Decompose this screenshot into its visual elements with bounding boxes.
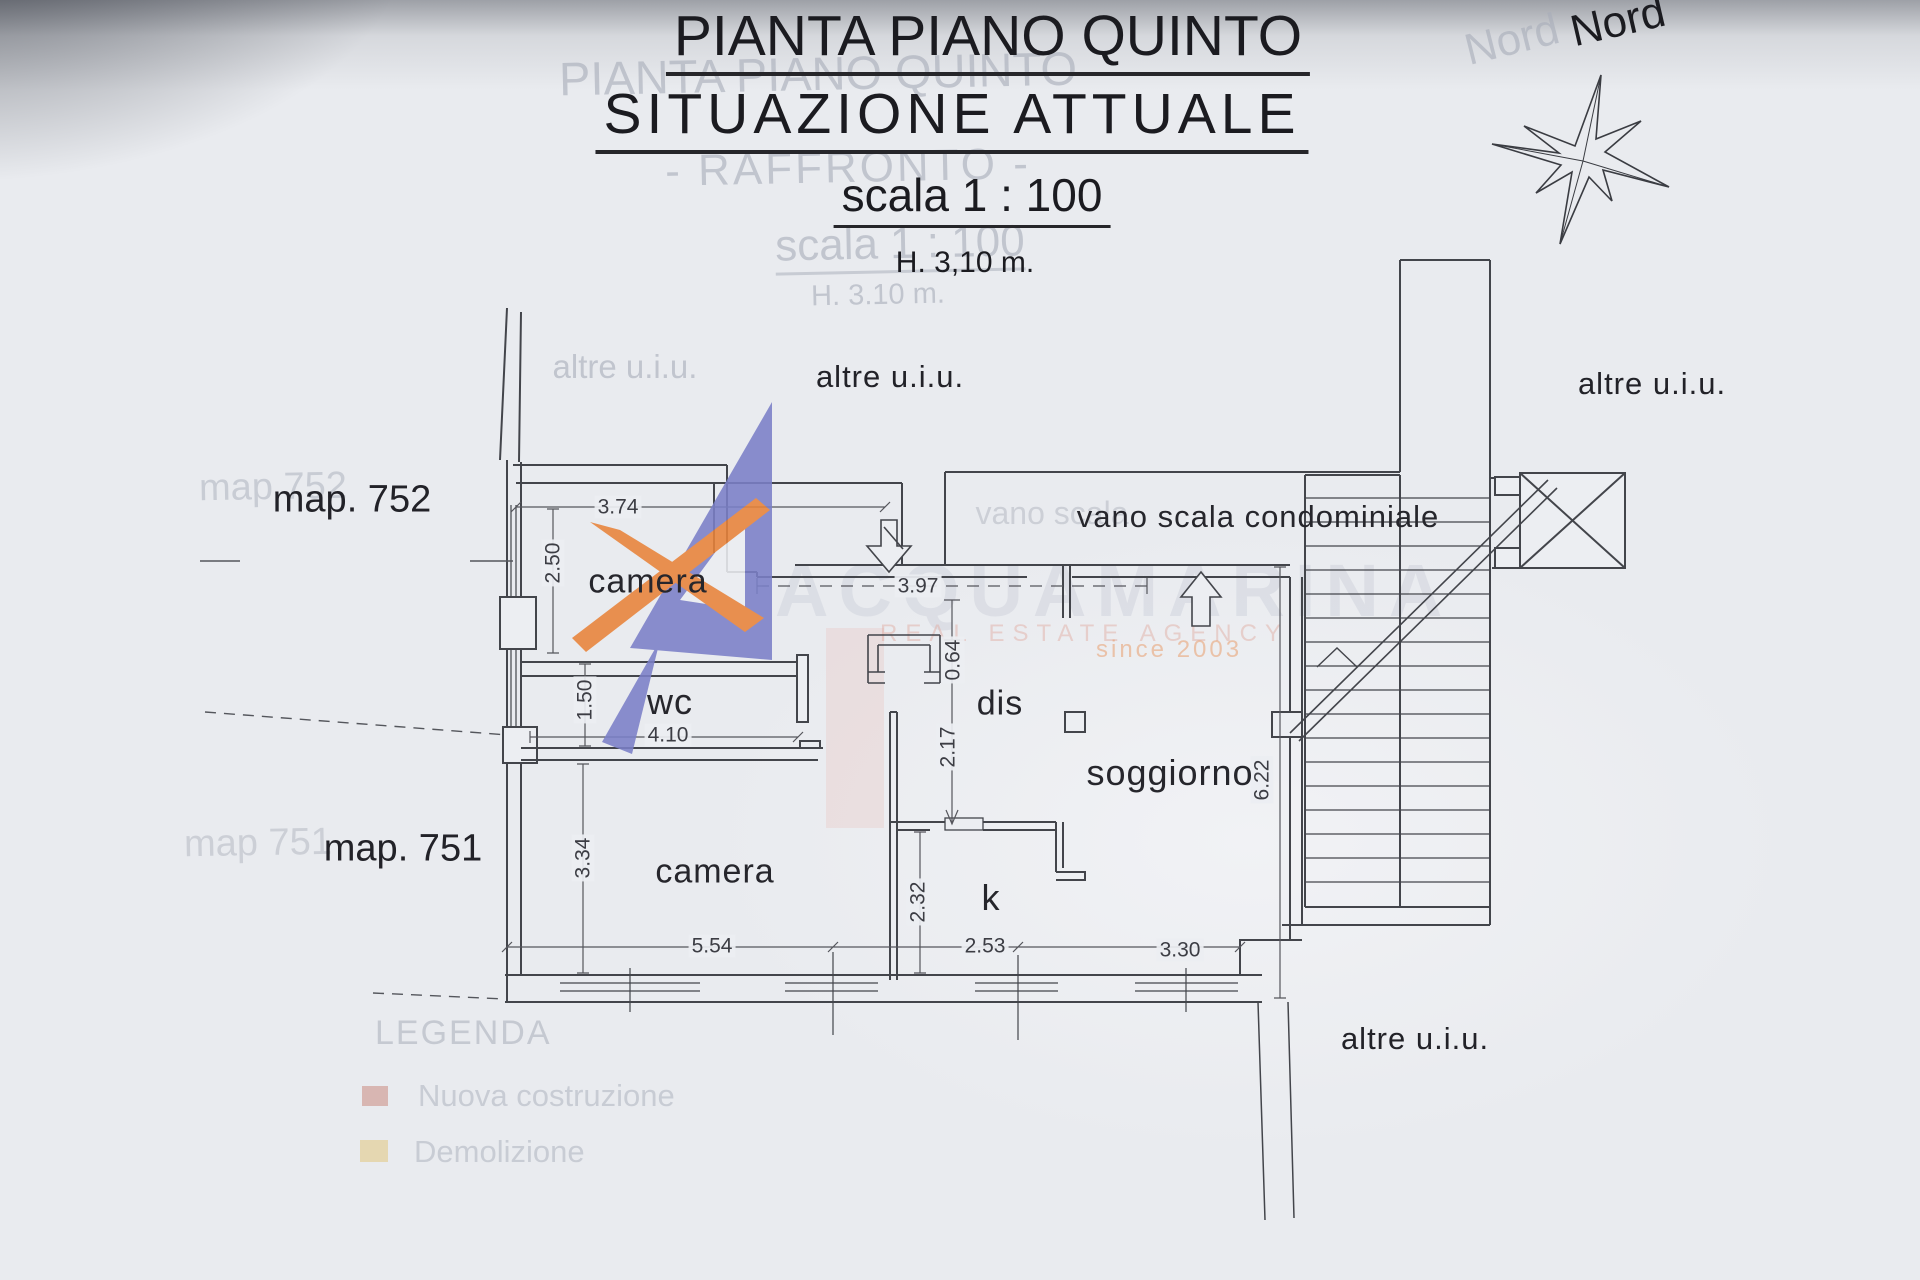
dim-2-32: 2.32: [906, 879, 929, 926]
area-label-altre-right: altre u.i.u.: [1578, 366, 1726, 402]
room-label-soggiorno: soggiorno: [1086, 752, 1253, 794]
room-label-wc: wc: [647, 681, 693, 723]
area-label-map752: map. 752: [273, 479, 431, 522]
dim-3-97: 3.97: [895, 574, 942, 597]
room-label-dis: dis: [977, 685, 1023, 724]
room-label-camera-top: camera: [588, 563, 707, 602]
area-label-altre-bottom: altre u.i.u.: [1341, 1021, 1489, 1057]
room-label-camera-bottom: camera: [655, 853, 774, 892]
area-label-map751: map. 751: [324, 828, 482, 871]
dim-2-17: 2.17: [936, 724, 959, 771]
dim-4-10: 4.10: [645, 723, 692, 746]
dim-3-34: 3.34: [571, 835, 594, 882]
scale-label: scala 1 : 100: [834, 172, 1111, 228]
page-subtitle: SITUAZIONE ATTUALE: [595, 86, 1308, 154]
dim-3-30: 3.30: [1157, 938, 1204, 961]
dim-6-22: 6.22: [1250, 757, 1273, 804]
dim-2-53: 2.53: [962, 934, 1009, 957]
room-label-vano-scala: vano scala condominiale: [1077, 499, 1440, 535]
scanned-floorplan-page: { "titles": { "l1": "PIANTA PIANO QUINTO…: [0, 0, 1920, 1280]
dim-0-64: 0.64: [941, 637, 964, 684]
dim-5-54: 5.54: [689, 934, 736, 957]
dim-1-50: 1.50: [573, 677, 596, 724]
dim-3-74: 3.74: [595, 495, 642, 518]
dim-2-50: 2.50: [541, 540, 564, 587]
area-label-altre-top: altre u.i.u.: [816, 359, 964, 395]
page-title: PIANTA PIANO QUINTO: [666, 8, 1310, 76]
height-label: H. 3,10 m.: [896, 248, 1034, 278]
room-label-kitchen: k: [982, 877, 1001, 919]
